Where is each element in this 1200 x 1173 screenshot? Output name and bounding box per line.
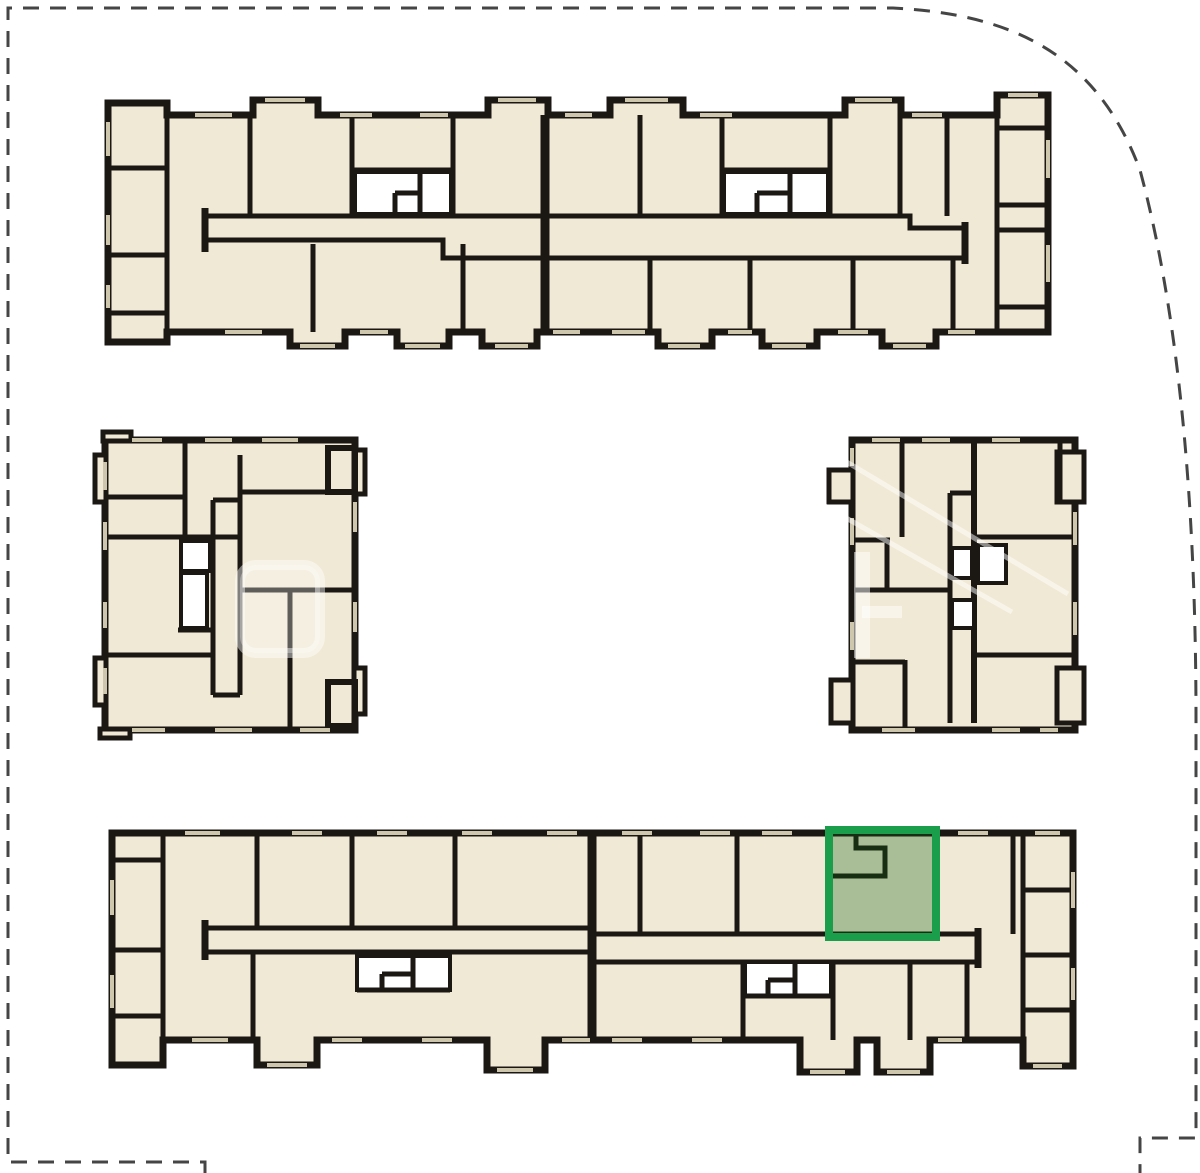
building-top	[108, 95, 1048, 346]
site-plan	[0, 0, 1200, 1173]
site-plan-svg	[0, 0, 1200, 1173]
selected-unit-highlight[interactable]	[829, 830, 936, 937]
